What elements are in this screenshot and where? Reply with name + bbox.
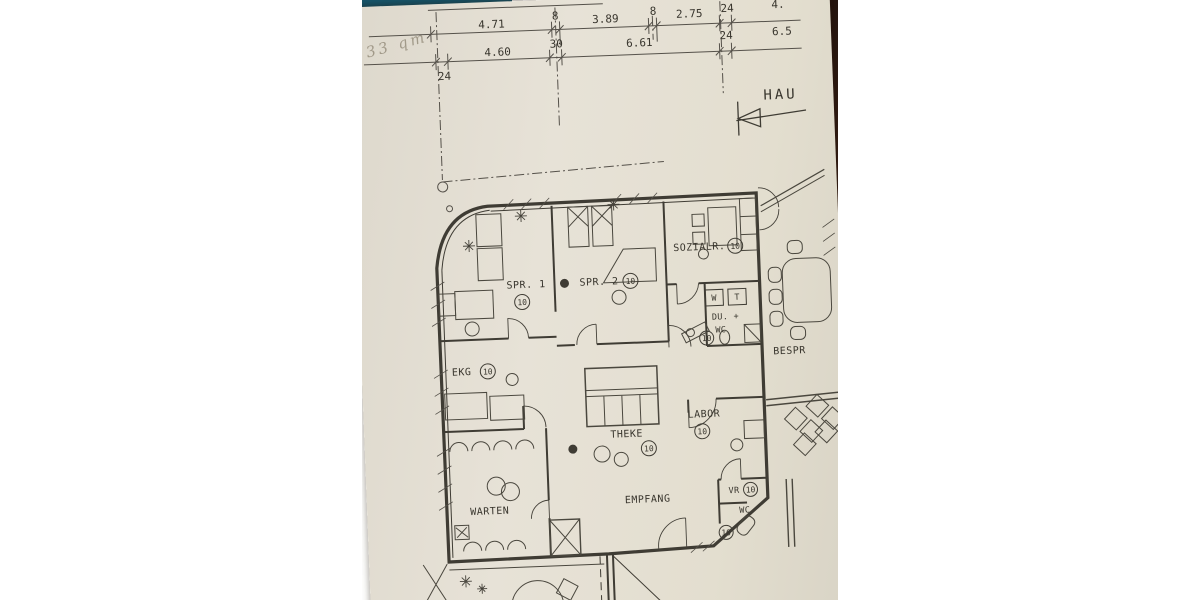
dimension-grid (362, 0, 807, 215)
dim-row1-0: 4.71 (478, 17, 505, 31)
room-label-warten: WARTEN (470, 506, 510, 518)
dryer-label: T (734, 293, 740, 303)
room-label-du: DU. + (712, 312, 739, 323)
svg-text:10: 10 (730, 242, 740, 251)
svg-text:10: 10 (746, 485, 756, 494)
room-label-du-wc: WC (715, 325, 726, 335)
svg-text:10: 10 (644, 444, 654, 453)
grid-marker-circle (438, 182, 448, 192)
room-label-empfang: EMPFANG (625, 493, 671, 506)
dim-row1-1: 8 (552, 9, 559, 22)
room-label-theke: THEKE (610, 428, 643, 440)
room-number-vr: 10 (743, 482, 758, 497)
room-label-wc-text: WC (739, 505, 750, 515)
paper-surface: 33 qm (362, 0, 838, 600)
dim-row2-0: 24 (438, 70, 452, 84)
room-number-ekg: 10 (480, 364, 496, 380)
right-wing (757, 169, 838, 548)
dim-row1-6: 4. (771, 0, 785, 11)
dim-row1-2: 3.89 (592, 12, 619, 26)
grid-marker-circle-small (446, 206, 452, 212)
room-label-spr2: SPR. 2 (579, 276, 619, 288)
svg-text:10: 10 (483, 367, 493, 376)
svg-text:10: 10 (697, 427, 707, 436)
svg-text:10: 10 (625, 277, 635, 286)
room-label-vr: VR (728, 486, 740, 496)
room-label-ekg: EKG (452, 367, 472, 379)
plant-symbols (445, 198, 634, 594)
svg-text:10: 10 (517, 298, 527, 307)
floorplan-photo: 33 qm (362, 0, 838, 600)
screenshot-stage: 33 qm (0, 0, 1200, 600)
washer-label: W (711, 294, 717, 304)
dim-row2-5: 6.5 (772, 24, 792, 38)
dim-row2-1: 4.60 (484, 45, 511, 59)
room-number-theke: 10 (641, 440, 657, 456)
dim-row1-4: 2.75 (676, 7, 703, 21)
dim-row1-3: 8 (650, 5, 657, 18)
dimension-labels: 4.71 8 3.89 8 2.75 24 4. 24 4.60 30 6.61… (435, 0, 793, 83)
entrance-arrow (736, 99, 807, 136)
dim-row2-3: 6.61 (626, 36, 653, 50)
floorplan-drawing: 4.71 8 3.89 8 2.75 24 4. 24 4.60 30 6.61… (362, 0, 838, 600)
room-number-sozialr: 10 (727, 238, 743, 254)
dim-row1-5: 24 (720, 2, 734, 16)
room-label-bespr: BESPR (773, 345, 806, 357)
room-number-labor: 10 (694, 423, 710, 439)
entrance-label: HAU (763, 86, 798, 103)
svg-text:10: 10 (721, 528, 731, 537)
dim-row2-2: 30 (549, 37, 563, 50)
room-label-spr1: SPR. 1 (506, 279, 546, 291)
room-label-sozialr: SOZIALR. (673, 241, 726, 254)
svg-text:10: 10 (702, 334, 712, 343)
room-number-spr1: 10 (514, 294, 530, 310)
room-number-spr2: 10 (623, 273, 639, 289)
paper-sheet: 33 qm (362, 0, 838, 600)
dim-row2-4: 24 (719, 29, 733, 43)
room-label-labor: LABOR (687, 408, 720, 420)
